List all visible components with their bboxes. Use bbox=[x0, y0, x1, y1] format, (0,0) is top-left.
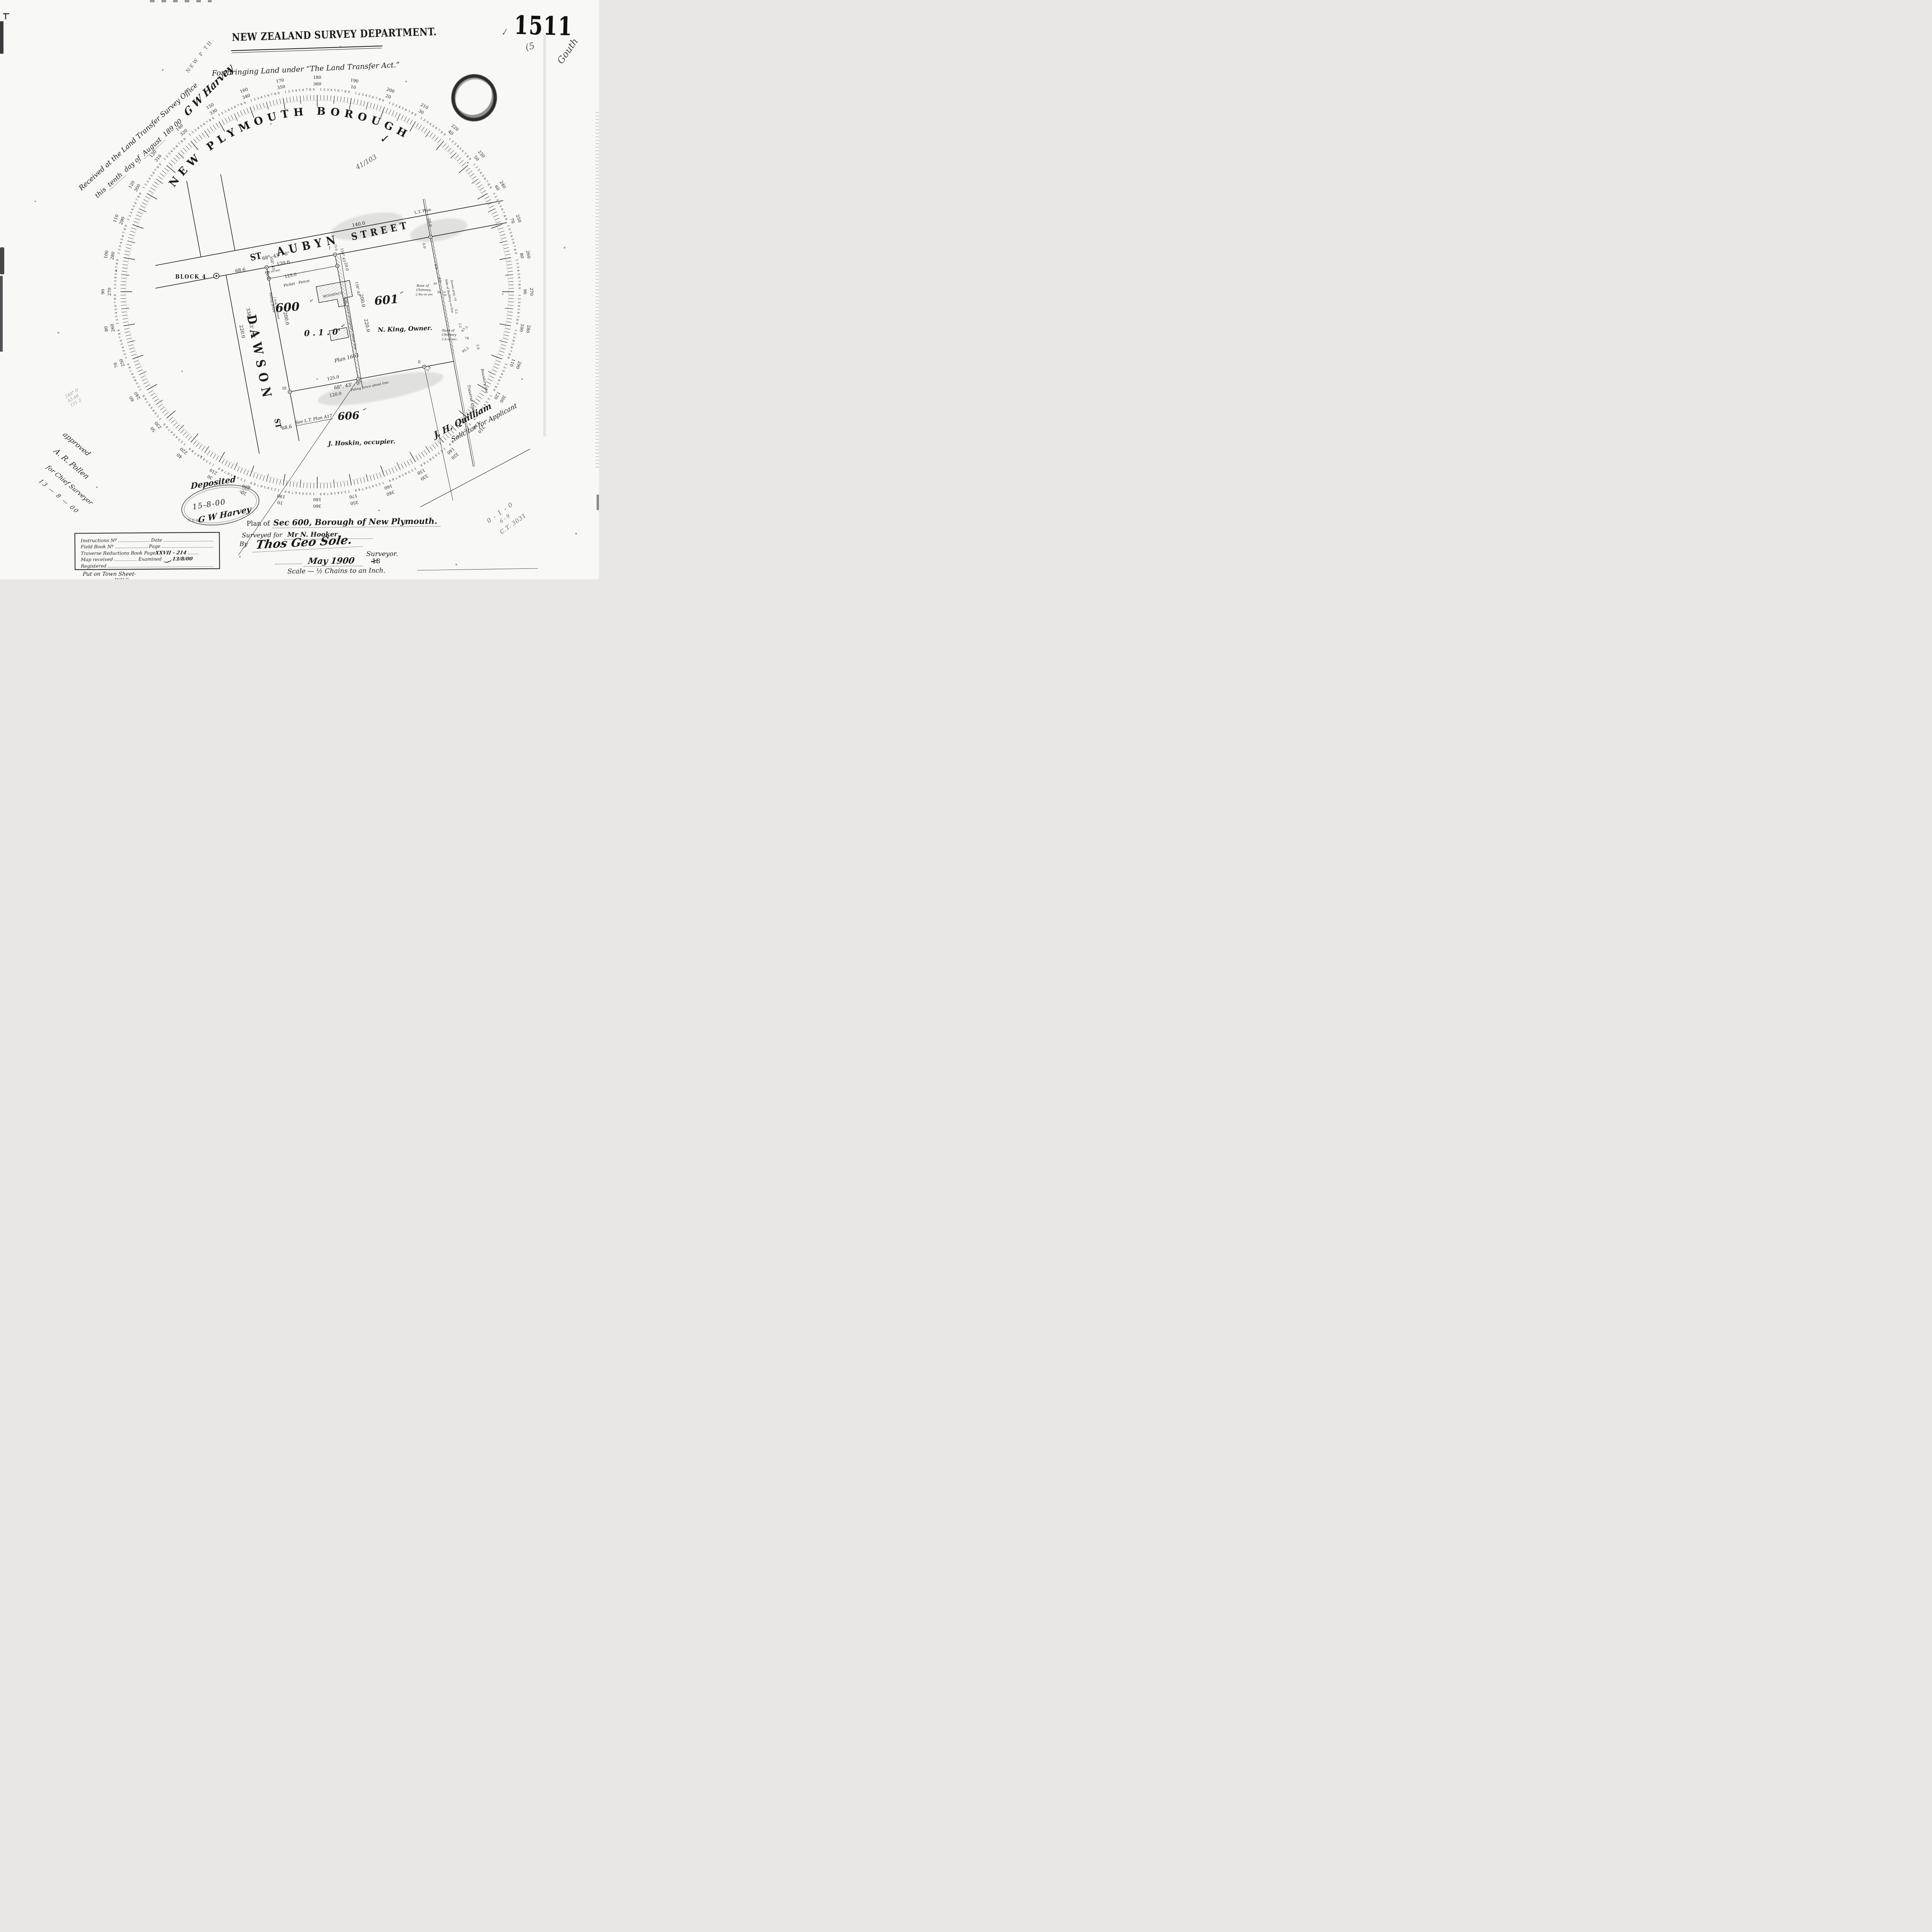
survey-date: May 1900 bbox=[303, 556, 364, 567]
map-label-29: 0.0 bbox=[422, 243, 427, 249]
examined-date-value: 13/8/00 bbox=[172, 556, 193, 561]
plan-title-value: Sec 600, Borough of New Plymouth. bbox=[272, 516, 440, 528]
map-label-44: 2.8 on sec. bbox=[442, 338, 458, 341]
struck-year-prefix: 18 bbox=[372, 558, 380, 565]
map-label-61: L.T. Plan bbox=[414, 207, 431, 215]
map-label-42: Base of bbox=[442, 329, 454, 333]
map-label-65: 606 bbox=[337, 410, 360, 423]
map-label-16: 158°.43' bbox=[339, 248, 346, 263]
map-label-48: 5.0 bbox=[475, 344, 480, 350]
table-row-registered: Registered bbox=[81, 561, 215, 569]
map-label-56: See L.T. Plan A17 bbox=[295, 413, 333, 426]
map-label-66: N. King, Owner. bbox=[378, 324, 432, 333]
map-label-9: 125.0 bbox=[284, 272, 297, 279]
map-label-0: ST bbox=[249, 250, 262, 263]
map-label-63: 0 . 1 . 0' bbox=[304, 327, 340, 338]
map-label-32: 3.0 bbox=[442, 291, 447, 296]
map-label-25: 200.0 bbox=[359, 294, 366, 308]
map-label-47: 95.5 bbox=[461, 346, 469, 354]
map-label-30: 5.0 bbox=[434, 264, 438, 269]
map-label-36: Chimney bbox=[416, 288, 431, 292]
plan-number-stamp: 1511 bbox=[514, 10, 573, 41]
map-label-35: Base of bbox=[417, 284, 429, 288]
map-label-70: ✓ bbox=[340, 322, 346, 330]
map-label-34: 36 bbox=[437, 291, 441, 294]
map-label-14: I bbox=[329, 247, 330, 251]
map-label-28: 20.0 bbox=[426, 218, 432, 227]
map-label-20: 220.0 bbox=[238, 325, 246, 338]
map-label-17: 20.0 bbox=[343, 262, 349, 271]
town-sheet-note: Put on Town Sheet- bbox=[82, 571, 136, 577]
map-label-59: II bbox=[418, 361, 420, 364]
map-label-49: Boundary line bbox=[480, 369, 488, 394]
map-label-67: J. Hoskin, occupier. bbox=[328, 437, 396, 447]
map-label-37: 2 lks on sec bbox=[416, 293, 433, 296]
map-label-46: 74 bbox=[465, 337, 469, 340]
date-line: May 1900 18 bbox=[275, 555, 380, 567]
map-label-41: 2.2 bbox=[458, 323, 462, 328]
map-label-51: Plan 1661 bbox=[334, 352, 360, 364]
map-label-57: 68.6 bbox=[281, 424, 293, 431]
map-label-64: 601 bbox=[374, 293, 399, 308]
map-label-54: 120.0 bbox=[329, 391, 342, 398]
survey-plan-sheet: NEW PLYMOUTH BOROUGH.1803601234567891901… bbox=[0, 0, 599, 579]
map-label-8: 140.0 bbox=[352, 220, 366, 228]
map-label-5: BLOCK 4 bbox=[175, 274, 207, 280]
map-label-68: RESIDENCE bbox=[323, 291, 343, 299]
map-label-18: 68.6 bbox=[235, 267, 246, 274]
map-label-72: ✓ bbox=[362, 406, 367, 413]
map-label-60: III bbox=[282, 387, 287, 391]
map-label-58: 5.0 bbox=[426, 366, 432, 372]
map-label-62: 600 bbox=[275, 300, 300, 315]
map-label-69: ✓ bbox=[309, 298, 314, 304]
by-line: By bbox=[240, 540, 248, 548]
map-label-26: 220.0 bbox=[363, 318, 371, 332]
map-label-31: 3.0 bbox=[437, 277, 442, 282]
traverse-book-page-value: XXVII - 214 bbox=[155, 549, 187, 556]
map-label-73: ✓ bbox=[379, 132, 391, 146]
map-label-10: Picket · Fence. bbox=[283, 279, 311, 288]
scale-label: Scale — ½ Chains to an Inch. bbox=[287, 567, 386, 575]
map-label-74: 41/103 bbox=[354, 153, 378, 171]
plan-title-line: Plan of Sec 600, Borough of New Plymouth… bbox=[247, 516, 440, 527]
map-label-7: 120.0 bbox=[276, 259, 290, 267]
register-table: Instructions Nº Date Field Book Nº Page … bbox=[75, 532, 220, 570]
map-label-71: ✓ bbox=[399, 290, 405, 296]
map-label-43: Chimney bbox=[442, 333, 456, 337]
map-label-52: 125.0 bbox=[327, 374, 339, 382]
map-label-33: 30 bbox=[433, 282, 437, 286]
map-label-40: 2.2 bbox=[454, 309, 458, 314]
town-sheet-initials: W.H.S. bbox=[114, 577, 130, 579]
